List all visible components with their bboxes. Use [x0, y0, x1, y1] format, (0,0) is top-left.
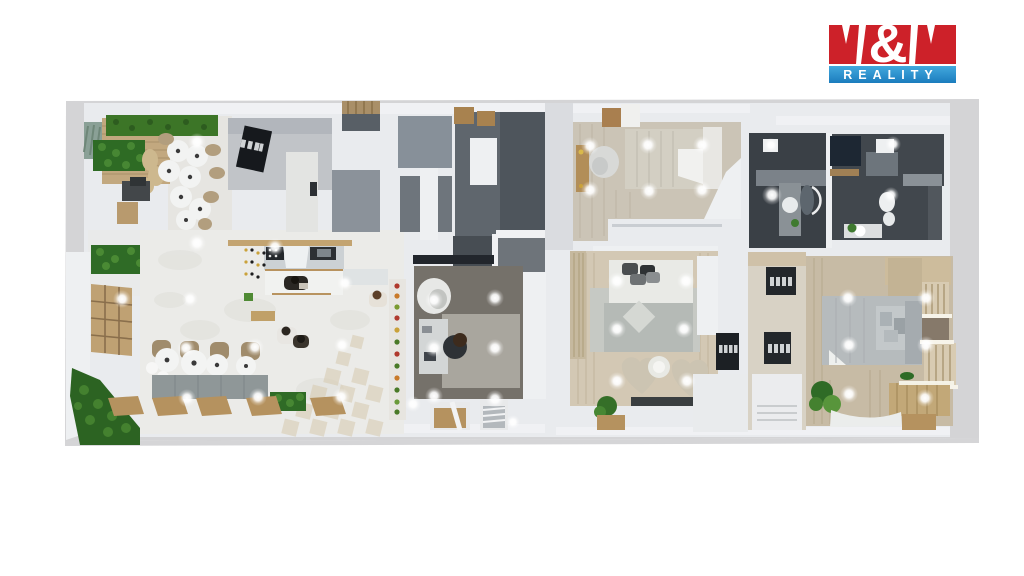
svg-text:REALITY: REALITY [843, 68, 938, 82]
svg-text:&: & [869, 14, 908, 74]
